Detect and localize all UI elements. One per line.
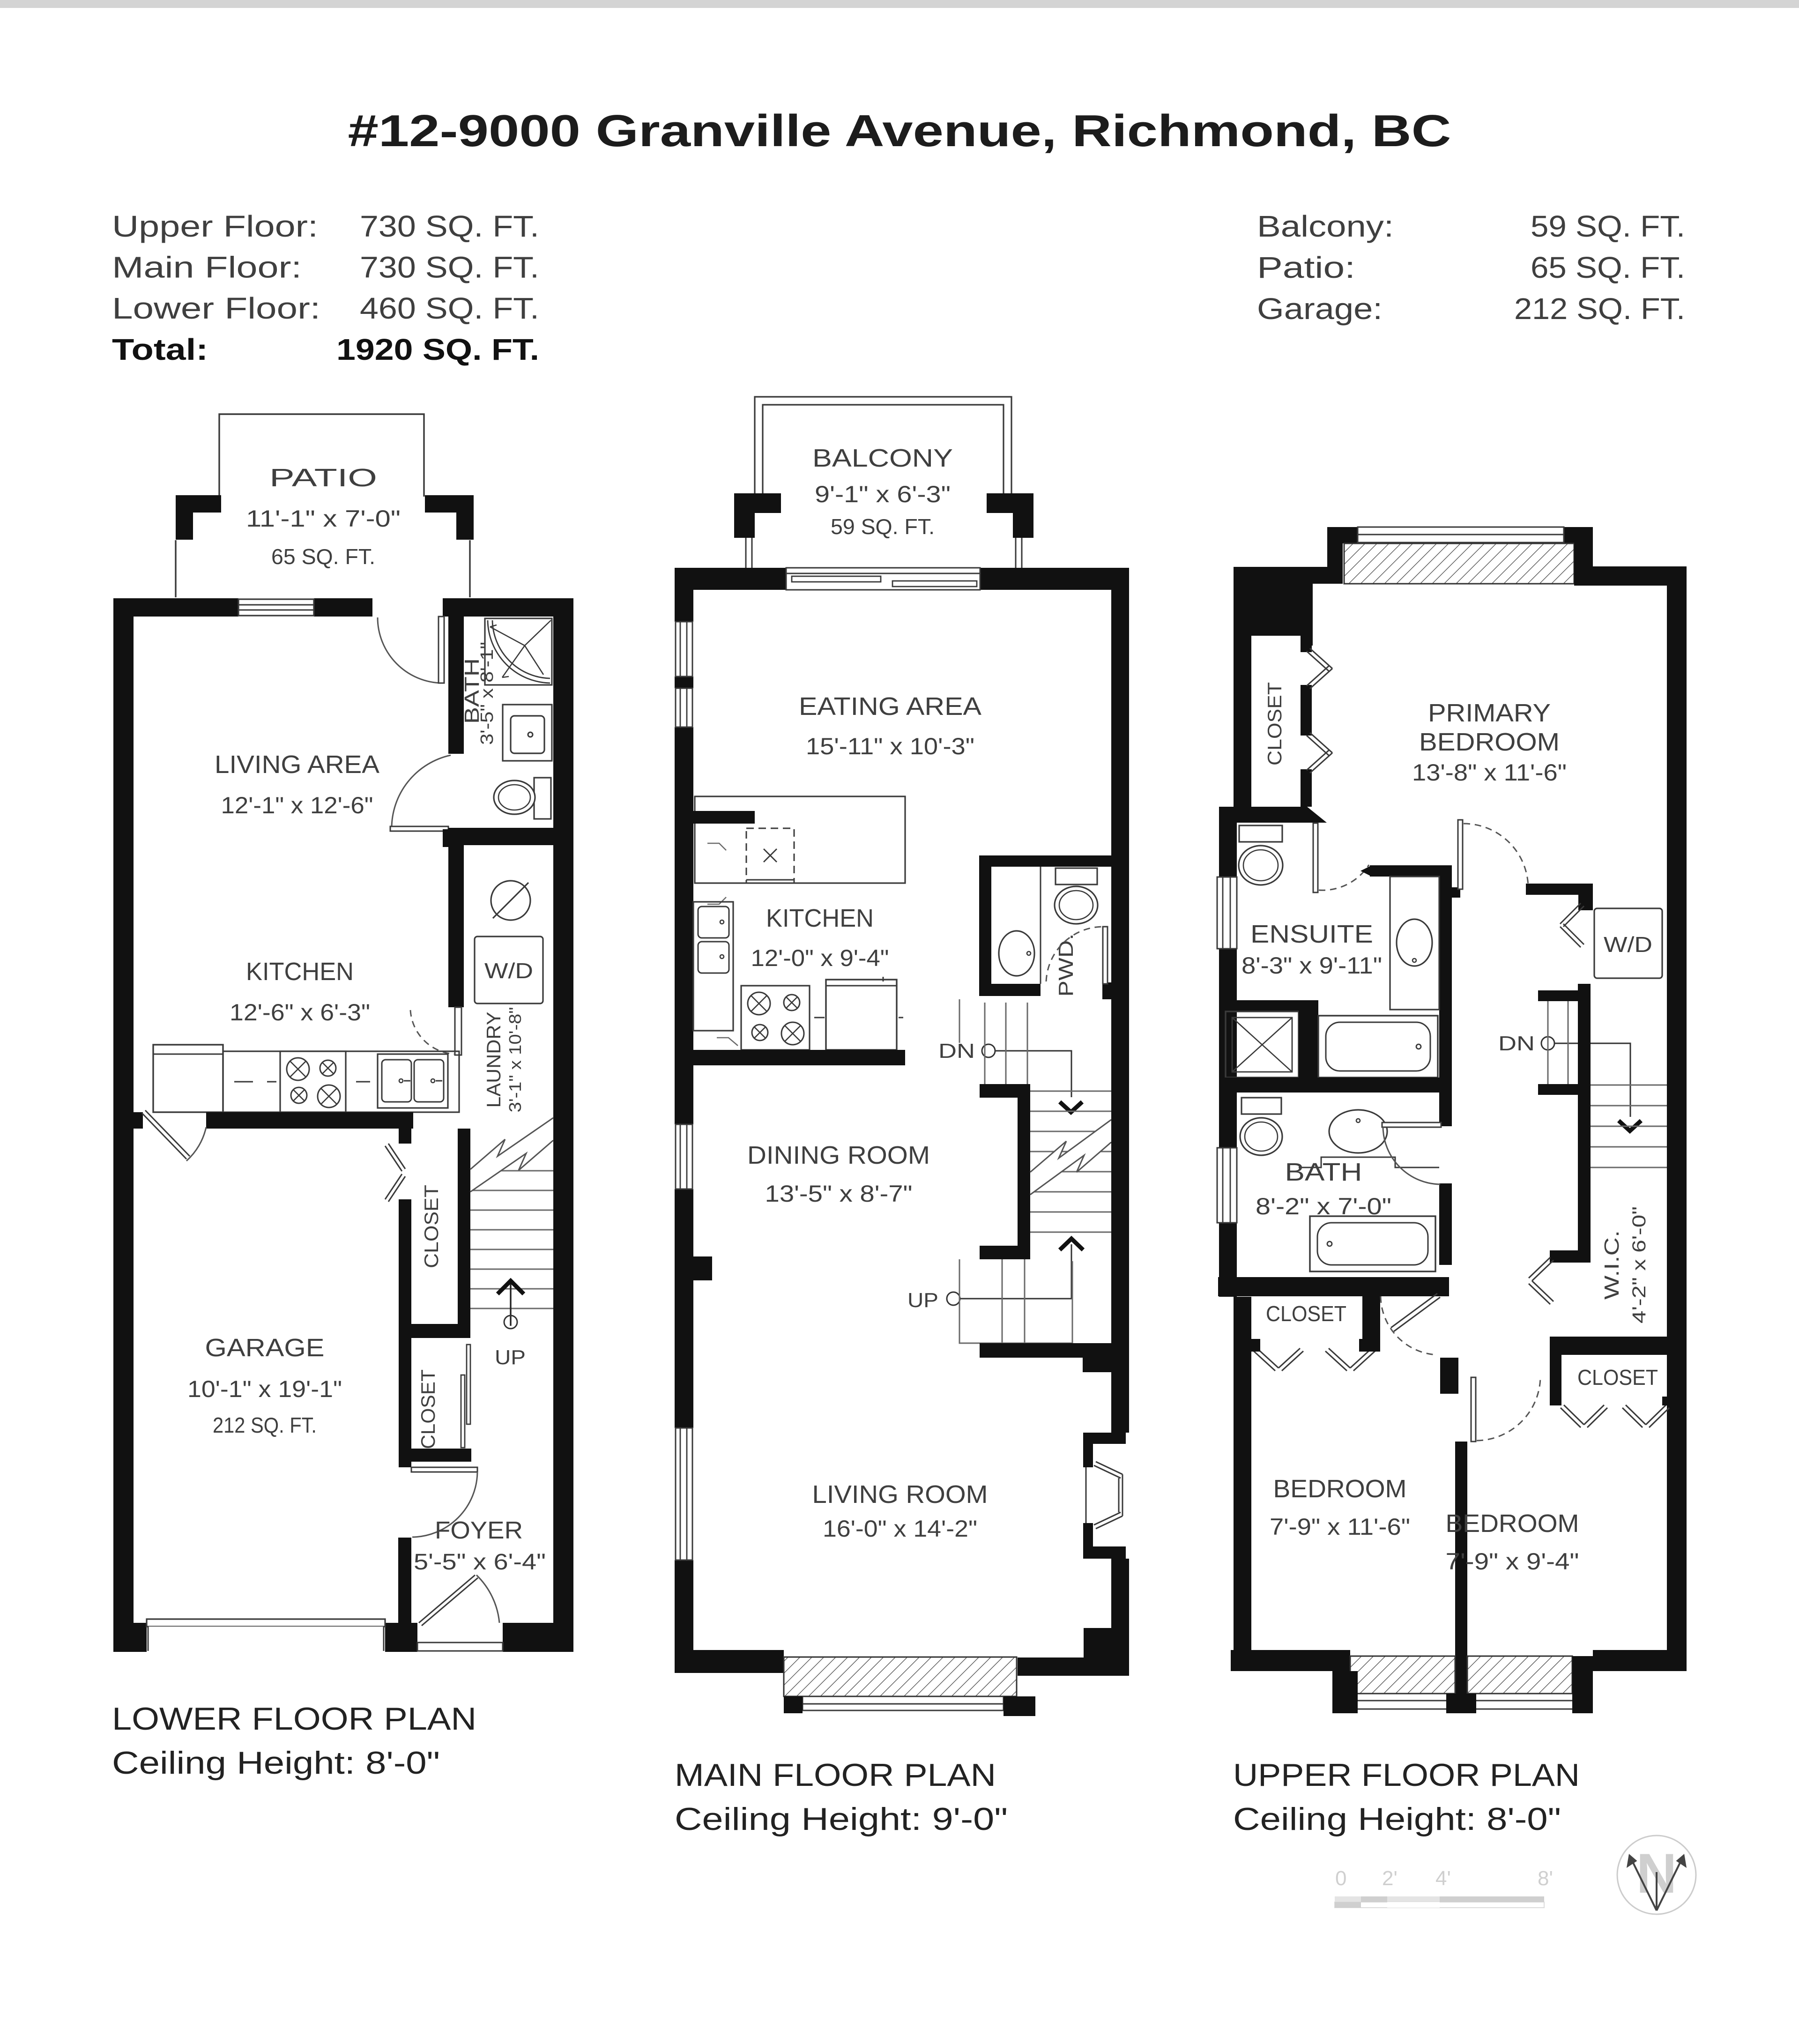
svg-text:CLOSET: CLOSET	[420, 1185, 442, 1268]
svg-text:212 SQ. FT.: 212 SQ. FT.	[1514, 292, 1685, 326]
svg-text:12'-1" x 12'-6": 12'-1" x 12'-6"	[221, 792, 373, 818]
svg-text:16'-0" x 14'-2": 16'-0" x 14'-2"	[823, 1516, 977, 1542]
svg-text:3'-1" x 10'-8": 3'-1" x 10'-8"	[506, 1007, 525, 1113]
svg-text:GARAGE: GARAGE	[205, 1334, 325, 1362]
svg-text:Balcony:: Balcony:	[1257, 209, 1394, 243]
svg-text:UP: UP	[495, 1346, 526, 1369]
svg-text:W/D: W/D	[1604, 932, 1652, 957]
svg-text:BEDROOM: BEDROOM	[1446, 1509, 1579, 1538]
svg-text:12'-6" x 6'-3": 12'-6" x 6'-3"	[230, 999, 370, 1026]
svg-text:LOWER FLOOR PLAN: LOWER FLOOR PLAN	[112, 1701, 476, 1737]
svg-text:460 SQ. FT.: 460 SQ. FT.	[360, 291, 539, 325]
svg-text:#12-9000 Granville Avenue, Ric: #12-9000 Granville Avenue, Richmond, BC	[348, 106, 1451, 156]
svg-text:LAUNDRY: LAUNDRY	[483, 1012, 505, 1108]
svg-text:PATIO: PATIO	[269, 464, 377, 492]
svg-text:UP: UP	[907, 1289, 938, 1312]
svg-text:0: 0	[1335, 1867, 1346, 1890]
svg-text:Ceiling Height: 8'-0": Ceiling Height: 8'-0"	[112, 1745, 440, 1781]
svg-text:5'-5" x 6'-4": 5'-5" x 6'-4"	[414, 1550, 546, 1575]
svg-text:4'-2" x 6'-0": 4'-2" x 6'-0"	[1629, 1206, 1650, 1323]
svg-text:MAIN FLOOR PLAN: MAIN FLOOR PLAN	[675, 1757, 996, 1793]
svg-text:730 SQ. FT.: 730 SQ. FT.	[360, 251, 539, 284]
svg-text:Ceiling Height: 9'-0": Ceiling Height: 9'-0"	[675, 1801, 1008, 1837]
svg-text:ENSUITE: ENSUITE	[1250, 920, 1373, 948]
svg-text:DINING ROOM: DINING ROOM	[747, 1141, 930, 1169]
svg-text:W/D: W/D	[484, 959, 533, 983]
svg-text:2': 2'	[1382, 1867, 1398, 1890]
svg-text:LIVING ROOM: LIVING ROOM	[812, 1480, 988, 1509]
svg-text:8': 8'	[1538, 1867, 1553, 1890]
svg-text:UPPER FLOOR PLAN: UPPER FLOOR PLAN	[1233, 1757, 1580, 1793]
svg-text:9'-1" x 6'-3": 9'-1" x 6'-3"	[815, 481, 951, 507]
svg-text:65 SQ. FT.: 65 SQ. FT.	[271, 544, 375, 569]
svg-text:EATING AREA: EATING AREA	[799, 692, 981, 721]
svg-text:10'-1" x 19'-1": 10'-1" x 19'-1"	[187, 1376, 342, 1402]
svg-text:BATH: BATH	[1285, 1158, 1362, 1186]
svg-text:CLOSET: CLOSET	[417, 1369, 439, 1449]
svg-text:59 SQ. FT.: 59 SQ. FT.	[1531, 209, 1685, 243]
svg-text:W.I.C.: W.I.C.	[1600, 1230, 1623, 1300]
svg-text:PRIMARY: PRIMARY	[1428, 699, 1551, 727]
svg-text:CLOSET: CLOSET	[1264, 682, 1286, 766]
svg-text:KITCHEN: KITCHEN	[246, 958, 354, 986]
svg-text:4': 4'	[1435, 1867, 1451, 1890]
svg-text:13'-8" x 11'-6": 13'-8" x 11'-6"	[1412, 759, 1567, 786]
svg-text:Garage:: Garage:	[1257, 292, 1383, 326]
svg-text:CLOSET: CLOSET	[1577, 1365, 1658, 1390]
svg-text:PWD.: PWD.	[1055, 934, 1078, 997]
svg-text:Ceiling Height: 8'-0": Ceiling Height: 8'-0"	[1233, 1801, 1561, 1837]
svg-text:Main Floor:: Main Floor:	[112, 251, 302, 284]
svg-text:12'-0" x 9'-4": 12'-0" x 9'-4"	[751, 945, 889, 971]
svg-text:59 SQ. FT.: 59 SQ. FT.	[831, 514, 935, 539]
svg-text:LIVING AREA: LIVING AREA	[215, 751, 379, 779]
svg-text:BEDROOM: BEDROOM	[1419, 728, 1560, 756]
svg-text:KITCHEN: KITCHEN	[766, 904, 874, 932]
svg-text:1920 SQ. FT.: 1920 SQ. FT.	[336, 333, 539, 366]
svg-text:DN: DN	[938, 1040, 975, 1063]
svg-text:3'-5" x 8'-1": 3'-5" x 8'-1"	[477, 642, 497, 745]
svg-text:Patio:: Patio:	[1257, 251, 1355, 284]
svg-text:DN: DN	[1498, 1032, 1535, 1055]
svg-text:BEDROOM: BEDROOM	[1273, 1475, 1407, 1503]
svg-text:Lower Floor:: Lower Floor:	[112, 291, 320, 325]
svg-text:BALCONY: BALCONY	[812, 444, 953, 472]
svg-text:FOYER: FOYER	[435, 1517, 523, 1544]
svg-text:15'-11" x 10'-3": 15'-11" x 10'-3"	[806, 733, 974, 759]
svg-text:11'-1" x 7'-0": 11'-1" x 7'-0"	[246, 505, 401, 532]
svg-text:212 SQ. FT.: 212 SQ. FT.	[213, 1413, 317, 1437]
svg-text:CLOSET: CLOSET	[1266, 1301, 1346, 1326]
svg-text:65 SQ. FT.: 65 SQ. FT.	[1531, 251, 1685, 284]
svg-text:730 SQ. FT.: 730 SQ. FT.	[360, 209, 539, 243]
svg-text:Upper Floor:: Upper Floor:	[112, 209, 318, 243]
svg-text:7'-9" x 11'-6": 7'-9" x 11'-6"	[1270, 1514, 1410, 1540]
svg-text:8'-3" x 9'-11": 8'-3" x 9'-11"	[1241, 952, 1382, 979]
svg-text:13'-5" x 8'-7": 13'-5" x 8'-7"	[765, 1181, 913, 1207]
svg-text:7'-9" x 9'-4": 7'-9" x 9'-4"	[1446, 1548, 1579, 1575]
svg-text:Total:: Total:	[112, 333, 208, 366]
